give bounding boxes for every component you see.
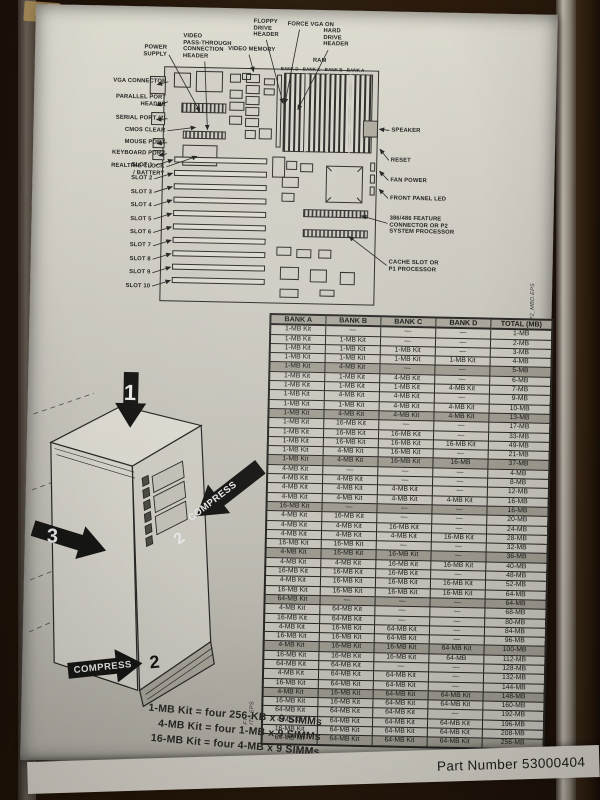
motherboard-diagram: POWER SUPPLYVGA CONNECTORPARALLEL PORT H… xyxy=(30,12,558,323)
label-power-supply: POWER SUPPLY xyxy=(105,43,167,57)
label-paper: POWER SUPPLYVGA CONNECTORPARALLEL PORT H… xyxy=(20,4,558,771)
label-slot-3: SLOT 3 xyxy=(118,189,152,196)
leader-line xyxy=(380,149,389,160)
label-parallel-port-header: PARALLEL PORT HEADER xyxy=(84,93,166,108)
label-bank-d: BANK D xyxy=(281,66,299,71)
table-cell: 64-MB Kit xyxy=(317,735,372,746)
label-slot-2: SLOT 2 xyxy=(118,175,152,182)
label-floppy: FLOPPY DRIVE HEADER xyxy=(253,19,285,39)
step-1-number: 1 xyxy=(124,380,137,405)
label-feature-connector: 386/486 FEATURE CONNECTOR OR P2 SYSTEM P… xyxy=(389,215,479,237)
label-bank-c: BANK C xyxy=(303,67,321,72)
label-hard-drive: HARD DRIVE HEADER xyxy=(323,28,355,48)
label-slot-1: SLOT 1 xyxy=(119,162,153,169)
label-ram: RAM xyxy=(313,58,343,65)
step-2-bottom-number: 2 xyxy=(148,652,160,673)
leader-line xyxy=(379,171,388,180)
label-slot-6: SLOT 6 xyxy=(117,229,151,236)
tower-art: 1 3 COMPRESS 2 COMPRESS 2 xyxy=(27,370,269,710)
part-number-text: Part Number 53000404 xyxy=(437,754,600,774)
label-bank-a: BANK A xyxy=(347,68,365,73)
leader-line xyxy=(379,189,388,198)
label-slot-4: SLOT 4 xyxy=(118,202,152,209)
label-slot-8: SLOT 8 xyxy=(117,256,151,263)
memory-config-table-wrap: BANK ABANK BBANK CBANK DTOTAL (MB)1-MB K… xyxy=(261,313,554,751)
chassis-frame-right xyxy=(556,0,576,800)
label-video-pass: VIDEO PASS-THROUGH CONNECTION HEADER xyxy=(183,33,234,60)
label-slot-10: SLOT 10 xyxy=(116,282,150,289)
table-cell: 64-MB Kit xyxy=(427,737,482,748)
table-cell: 64-MB Kit xyxy=(372,736,427,747)
chassis-frame-right-dark xyxy=(576,0,600,800)
label-slot-5: SLOT 5 xyxy=(117,215,151,222)
photo-of-memory-config-label: POWER SUPPLYVGA CONNECTORPARALLEL PORT H… xyxy=(0,0,600,800)
label-bank-b: BANK B xyxy=(325,67,343,72)
label-cache-slot: CACHE SLOT OR P1 PROCESSOR xyxy=(388,259,478,274)
leader-line xyxy=(379,129,389,130)
label-slot-7: SLOT 7 xyxy=(117,242,151,249)
tower-illustration: 1 3 COMPRESS 2 COMPRESS 2 FT-ITC.EPS xyxy=(27,370,269,710)
label-slot-9: SLOT 9 xyxy=(116,269,150,276)
step-3-number: 3 xyxy=(47,525,59,547)
label-video-memory: VIDEO MEMORY xyxy=(228,46,278,54)
memory-config-table: BANK ABANK BBANK CBANK DTOTAL (MB)1-MB K… xyxy=(261,313,554,751)
